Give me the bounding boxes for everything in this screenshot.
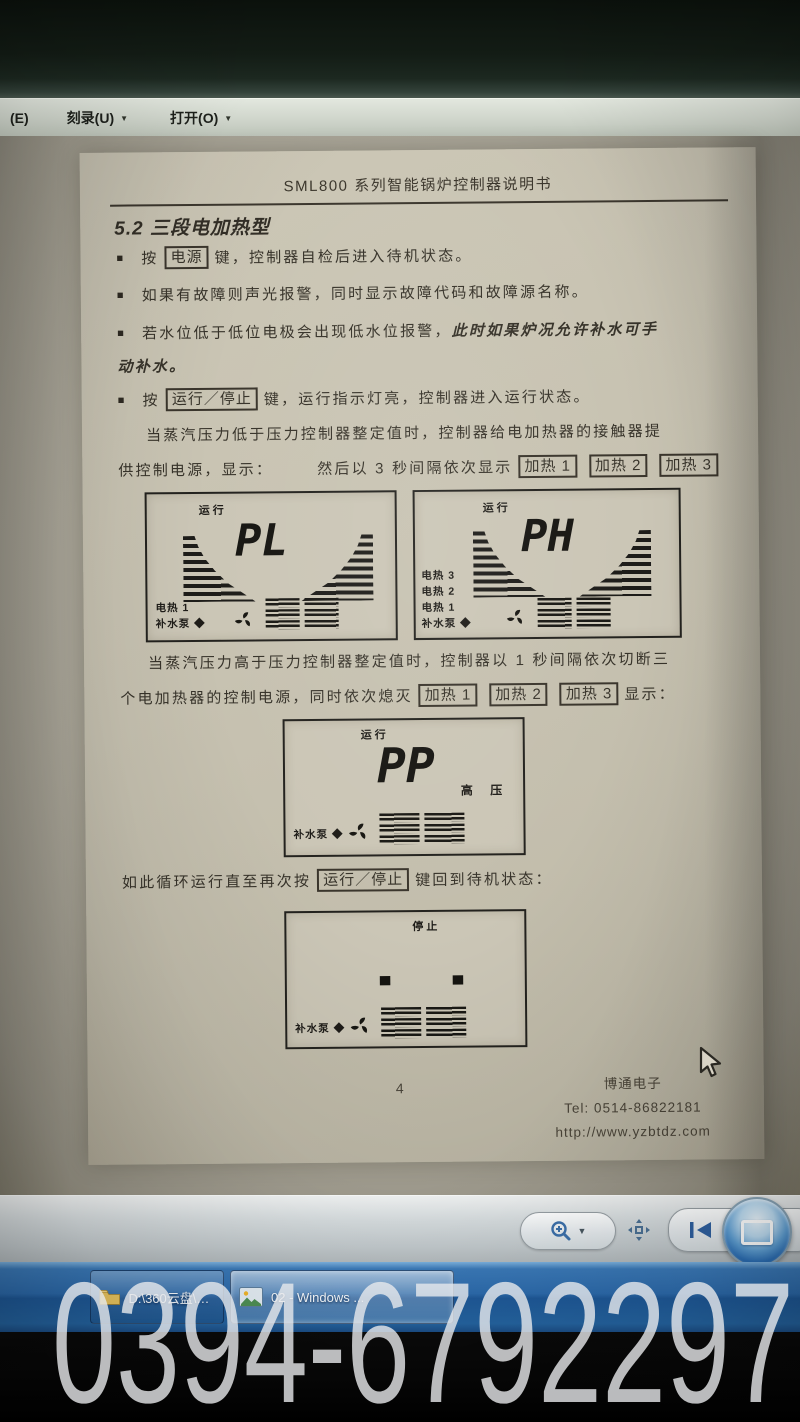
fan-icon: [345, 818, 371, 844]
monitor-top-bezel: [0, 0, 800, 98]
lcd-label-heater1: 电热 1: [156, 600, 206, 616]
bullet-square-icon: ■: [117, 327, 126, 339]
lcd-display-pp: 运行 PP 高 压 补水泵 ◆: [283, 717, 526, 857]
heater2-key-label: 加热 2: [589, 454, 648, 478]
monitor-bottom-bezel: [0, 1332, 800, 1422]
bullet-text: 如果有故障则声光报警，同时显示故障代码和故障源名称。: [142, 281, 589, 306]
heater1-key-label: 加热 1: [518, 455, 577, 479]
page-number: 4: [396, 1080, 404, 1096]
lcd-display-ph: 运行 PH 电热 3 电热 2 电热 1 补水泵 ◆: [413, 488, 682, 640]
viewer-area: SML800 系列智能锅炉控制器说明书 5.2 三段电加热型 ■ 按 电源 键，…: [0, 136, 800, 1195]
paragraph-text: 个电加热器的控制电源，同时依次熄灭: [120, 685, 413, 709]
bullet-text: 键，控制器自检后进入待机状态。: [214, 245, 472, 268]
heater3-key-label: 加热 3: [659, 453, 718, 477]
paragraph-text: 如此循环运行直至再次按: [122, 870, 311, 893]
menu-item-email-cropped[interactable]: (E): [0, 110, 39, 126]
bullet-text: 键，运行指示灯亮，控制器进入运行状态。: [264, 386, 591, 410]
run-stop-key-label: 运行／停止: [166, 387, 258, 411]
paragraph-text: 供控制电源，显示：: [118, 458, 273, 480]
bullet-text: 按: [143, 389, 160, 410]
bullet-square-icon: ■: [117, 289, 126, 301]
lcd-value-dashes: - -: [374, 939, 484, 1016]
document-page: SML800 系列智能锅炉控制器说明书 5.2 三段电加热型 ■ 按 电源 键，…: [80, 147, 765, 1165]
bullet-text-italic: 此时如果炉况允许补水可手: [452, 318, 659, 341]
bullet-fault: ■ 如果有故障则声光报警，同时显示故障代码和故障源名称。: [117, 281, 589, 306]
lcd-label-heater3: 电热 3: [421, 568, 471, 584]
bullet-power: ■ 按 电源 键，控制器自检后进入待机状态。: [116, 244, 472, 270]
company-url: http://www.yzbtdz.com: [508, 1119, 758, 1145]
heater3-key-label: 加热 3: [560, 682, 619, 706]
loop-sentence: 如此循环运行直至再次按 运行／停止 键回到待机状态：: [122, 867, 553, 894]
lcd-label-feedpump: 补水泵 ◆: [422, 616, 472, 632]
lcd-value: PL: [235, 515, 288, 566]
lcd-label-heater1: 电热 1: [422, 600, 472, 616]
company-name: 博通电子: [508, 1071, 758, 1097]
photo-viewer-toolbar: ▼: [0, 1195, 800, 1263]
paragraph-text: 显示：: [624, 683, 676, 704]
header-rule: [110, 199, 728, 206]
paragraph-low-pressure: 当蒸汽压力低于压力控制器整定值时，控制器给电加热器的接触器提: [146, 420, 662, 446]
photo-viewer-icon: [239, 1287, 263, 1307]
bullet-water-level-cont: 动补水。: [117, 355, 186, 377]
paragraph-high-pressure-cont: 个电加热器的控制电源，同时依次熄灭 加热 1 加热 2 加热 3 显示：: [120, 682, 676, 710]
paragraph-text: 然后以 3 秒间隔依次显示: [317, 456, 512, 479]
water-level-bars: [381, 1007, 466, 1039]
paragraph-text: 当蒸汽压力高于压力控制器整定值时，控制器以 1 秒间隔依次切断三: [148, 648, 670, 674]
lcd-bargraph-right: [301, 534, 374, 601]
bullet-text-italic: 动补水。: [117, 355, 186, 377]
menu-item-open[interactable]: 打开(O) ▼: [160, 108, 242, 128]
bullet-square-icon: ■: [116, 252, 125, 264]
menu-item-label: 刻录(U): [67, 108, 114, 128]
lcd-labels: 补水泵 ◆: [293, 827, 343, 843]
lcd-status-stop: 停止: [412, 918, 440, 934]
windows-taskbar: D:\360云盘\仪表... 02 - Windows ...: [0, 1262, 800, 1332]
taskbar-button-label: 02 - Windows ...: [271, 1290, 364, 1305]
paragraph-text: 键回到待机状态：: [415, 868, 553, 890]
water-level-bars: [265, 598, 338, 630]
heater1-key-label: 加热 1: [419, 684, 478, 708]
company-phone: Tel: 0514-86822181: [508, 1095, 758, 1121]
fit-to-window-button[interactable]: [626, 1217, 652, 1243]
fit-to-window-icon: [627, 1218, 651, 1242]
folder-icon: [99, 1286, 120, 1308]
bullet-water-level: ■ 若水位低于低位电极会出现低水位报警， 此时如果炉况允许补水可手: [117, 318, 658, 344]
taskbar-button-label: D:\360云盘\仪表...: [128, 1288, 215, 1307]
document-header-title: SML800 系列智能锅炉控制器说明书: [80, 171, 756, 198]
lcd-display-pl: 运行 PL 电热 1 补水泵 ◆: [145, 490, 398, 642]
lcd-labels: 电热 1 补水泵 ◆: [156, 600, 206, 632]
taskbar-button-folder[interactable]: D:\360云盘\仪表...: [90, 1270, 224, 1324]
fan-icon: [504, 605, 528, 629]
lcd-label-heater2: 电热 2: [421, 584, 471, 600]
slideshow-icon: [741, 1220, 773, 1245]
menu-bar: (E) 刻录(U) ▼ 打开(O) ▼: [0, 98, 800, 138]
magnifier-plus-icon: [550, 1220, 572, 1242]
fan-icon: [232, 607, 256, 631]
taskbar-button-photo-viewer[interactable]: 02 - Windows ...: [230, 1270, 454, 1324]
lcd-status-run: 运行: [483, 499, 511, 515]
menu-item-label: (E): [10, 110, 29, 126]
menu-item-label: 打开(O): [170, 108, 218, 128]
lcd-labels: 电热 3 电热 2 电热 1 补水泵 ◆: [421, 568, 471, 632]
paragraph-low-pressure-cont: 供控制电源，显示： 然后以 3 秒间隔依次显示 加热 1 加热 2 加热 3: [118, 453, 724, 481]
chevron-down-icon: ▼: [578, 1226, 587, 1236]
water-level-bars: [379, 813, 464, 845]
bullet-text: 若水位低于低位电极会出现低水位报警，: [142, 320, 452, 344]
power-key-label: 电源: [164, 246, 208, 269]
previous-icon[interactable]: [689, 1221, 713, 1239]
lcd-label-feedpump: 补水泵 ◆: [156, 616, 206, 632]
run-stop-key-label: 运行／停止: [317, 868, 409, 892]
heater2-key-label: 加热 2: [489, 683, 548, 707]
lcd-labels: 补水泵 ◆: [295, 1021, 345, 1037]
bullet-square-icon: ■: [118, 394, 127, 406]
bullet-run-stop: ■ 按 运行／停止 键，运行指示灯亮，控制器进入运行状态。: [118, 385, 591, 412]
lcd-bargraph-right: [579, 530, 652, 597]
section-title: 5.2 三段电加热型: [114, 212, 270, 240]
footer-company-block: 博通电子 Tel: 0514-86822181 http://www.yzbtd…: [508, 1071, 759, 1145]
menu-item-burn[interactable]: 刻录(U) ▼: [57, 108, 138, 128]
lcd-label-high-pressure: 高 压: [461, 781, 509, 798]
lcd-label-feedpump: 补水泵 ◆: [293, 827, 343, 843]
lcd-status-run: 运行: [199, 502, 227, 518]
lcd-value: PH: [521, 511, 574, 562]
lcd-label-feedpump: 补水泵 ◆: [295, 1021, 345, 1037]
chevron-down-icon: ▼: [224, 114, 232, 123]
lcd-display-standby: 停止 - - 补水泵 ◆: [284, 909, 527, 1049]
fan-icon: [347, 1012, 373, 1038]
lcd-value: PP: [377, 738, 435, 795]
water-level-bars: [537, 597, 610, 629]
bullet-text: 按: [141, 247, 158, 268]
play-slideshow-button[interactable]: [722, 1197, 792, 1267]
zoom-control[interactable]: ▼: [520, 1212, 616, 1250]
paragraph-high-pressure: 当蒸汽压力高于压力控制器整定值时，控制器以 1 秒间隔依次切断三: [148, 648, 670, 674]
chevron-down-icon: ▼: [120, 114, 128, 123]
paragraph-text: 当蒸汽压力低于压力控制器整定值时，控制器给电加热器的接触器提: [146, 420, 662, 446]
